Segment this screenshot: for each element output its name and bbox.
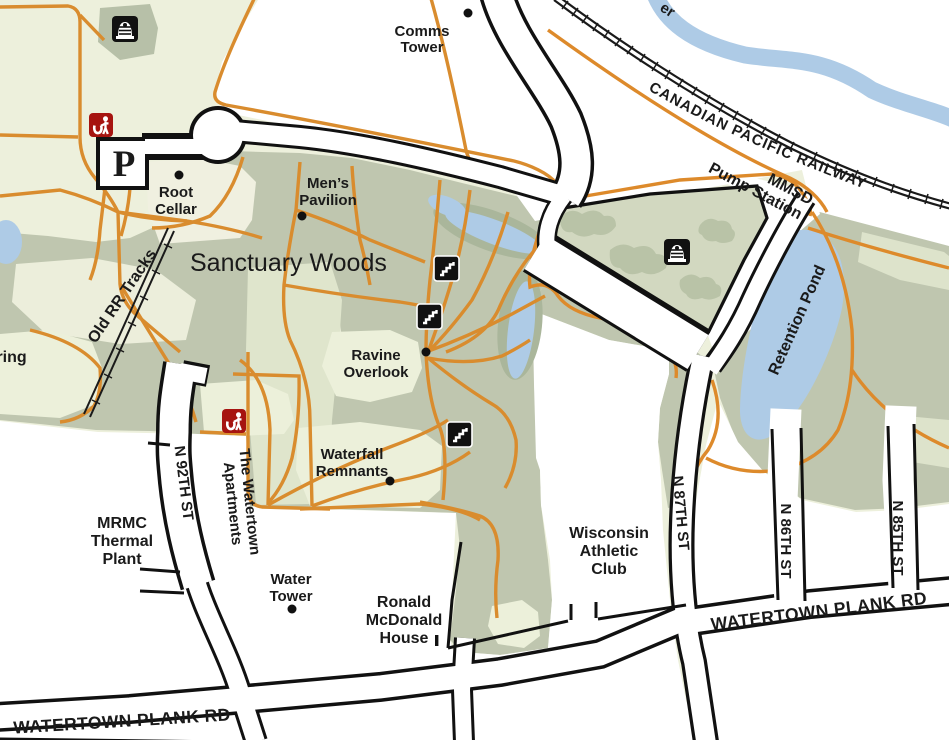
svg-text:N 86TH ST: N 86TH ST [777,503,794,578]
svg-text:Sanctuary Woods: Sanctuary Woods [190,249,387,277]
svg-text:Athletic: Athletic [580,543,639,560]
svg-text:Overlook: Overlook [343,364,409,381]
svg-text:Comms: Comms [394,23,449,40]
svg-text:P: P [113,144,136,185]
svg-text:MRMC: MRMC [97,515,147,532]
svg-text:Pavilion: Pavilion [299,192,357,209]
svg-text:Tower: Tower [400,39,443,56]
svg-text:Water: Water [270,571,311,588]
svg-text:Ronald: Ronald [377,594,431,611]
svg-text:Thermal: Thermal [91,533,153,550]
svg-text:Spring: Spring [0,349,27,366]
svg-text:Root: Root [159,184,193,201]
svg-text:House: House [380,630,429,647]
svg-text:Club: Club [591,561,627,578]
svg-text:Ravine: Ravine [351,347,400,364]
svg-text:Cellar: Cellar [155,201,197,218]
svg-text:N 85TH ST: N 85TH ST [889,500,906,575]
svg-text:Tower: Tower [269,588,312,605]
svg-text:Remnants: Remnants [316,463,389,480]
svg-text:Waterfall: Waterfall [321,446,384,463]
svg-text:McDonald: McDonald [366,612,442,629]
svg-text:Plant: Plant [102,551,142,568]
svg-text:Men’s: Men’s [307,175,349,192]
svg-text:Wisconsin: Wisconsin [569,525,649,542]
